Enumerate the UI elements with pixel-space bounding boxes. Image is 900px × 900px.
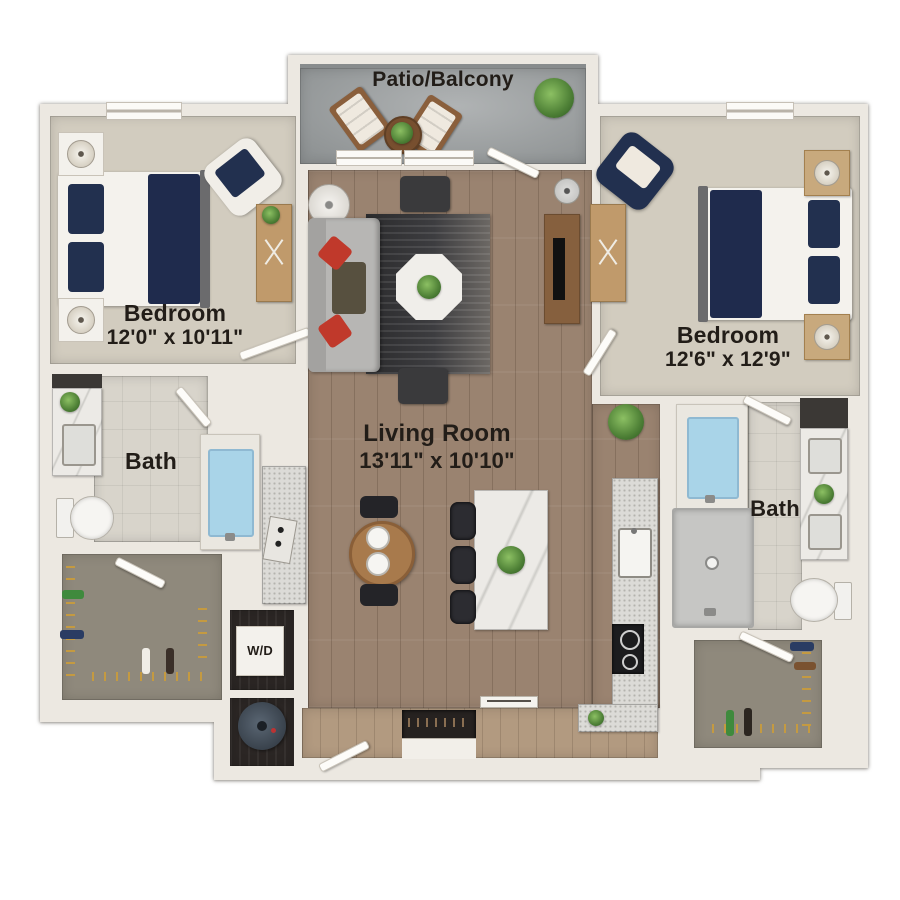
bathtub-surround [200,434,260,550]
floor-plan: W/D Patio/Balcony Bedroom 12'0" x 10'11" [0,0,900,900]
bar-stool [450,590,476,624]
living-room-label: Living Room 13'11" x 10'10" [322,420,552,473]
bed-left [58,172,208,306]
patio-table-plant [391,122,413,144]
bathtub-surround [676,404,748,510]
pillow-navy [68,184,104,234]
toilet-bowl [790,578,838,622]
table-lamp [814,160,840,186]
bathroom-sink [808,438,842,474]
dining-chair [360,584,398,606]
bedroom-left-label: Bedroom 12'0" x 10'11" [70,300,280,351]
bed-right [700,188,852,320]
small-appliance [262,516,297,564]
vanity-plant [60,392,80,412]
bath-right-label: Bath [742,496,808,521]
faucet [631,528,637,534]
blanket-navy [148,174,200,304]
bathtub [208,449,254,537]
shower [672,508,754,628]
hanging-garment [60,630,84,639]
desk-plant [262,206,280,224]
floor-lamp [554,178,580,204]
room-name: Bedroom [70,300,280,326]
bathroom-sink [62,424,96,466]
room-dimensions: 13'11" x 10'10" [322,448,552,473]
pillow-navy [68,242,104,292]
island-plant [497,546,525,574]
burner [622,654,638,670]
tv [553,238,565,300]
bathroom-sink [808,514,842,550]
place-setting [366,526,390,550]
sofa-backrest [308,218,326,372]
table-lamp [67,140,95,168]
bar-stool [450,502,476,540]
corridor-plant [608,404,644,440]
bath-left-label: Bath [94,448,208,474]
desk-right-bedroom [590,204,626,302]
bed-footboard [698,186,708,322]
appliance-knob [277,527,284,534]
window [726,102,794,120]
counter-plant [588,710,604,726]
coat-closet [402,710,476,758]
sofa [308,218,380,372]
closet-bifold-door [402,738,476,759]
patio-window [404,150,474,166]
room-dimensions: 12'6" x 12'9" [618,348,838,372]
patio-label: Patio/Balcony [300,68,586,92]
kitchen-counter-left [262,466,306,604]
armchair-cushion [214,147,266,198]
pillow-navy [808,200,840,248]
room-name: Bedroom [618,322,838,348]
kitchen-sink [618,528,652,578]
toilet-bowl [70,496,114,540]
accent-chair [400,176,450,212]
hanging-garment [142,648,150,674]
entry-shelf [480,696,538,708]
coat-hangers [408,718,470,727]
window [106,102,182,120]
burner [620,630,640,650]
blanket-navy [710,190,762,318]
cooktop [612,624,644,674]
closet-rod-ticks [66,566,75,684]
bar-stool [450,546,476,584]
armchair-pillow [614,144,661,189]
valve [271,728,276,733]
tub-faucet [705,495,715,503]
dining-chair [360,496,398,518]
washer-dryer-unit: W/D [236,626,284,676]
vanity-shelf [52,374,102,388]
patio-window [336,150,402,166]
vanity-plant [814,484,834,504]
accent-chair [398,368,448,404]
bathtub [687,417,739,499]
pillow-navy [808,256,840,304]
water-heater-cap [257,721,267,731]
hanging-garment [62,590,84,599]
shower-fixture [704,608,716,616]
coffee-table-plant [417,275,441,299]
shower-drain [705,556,719,570]
hanging-garment [744,708,752,736]
closet-rod-ticks [198,608,207,666]
vanity-shelf [800,398,848,428]
hanging-garment [790,642,814,651]
room-name: Living Room [322,420,552,448]
room-dimensions: 12'0" x 10'11" [70,326,280,350]
hanging-garment [166,648,174,674]
water-heater [238,702,286,750]
tub-faucet [225,533,235,541]
closet-rod-ticks [92,672,212,681]
hanging-garment [726,710,734,736]
bedroom-right-label: Bedroom 12'6" x 12'9" [618,322,838,373]
washer-dryer-label: W/D [247,644,273,659]
appliance-knob [275,540,282,547]
hanging-garment [794,662,816,670]
place-setting [366,552,390,576]
bed-footboard [200,170,210,308]
shelf-edge [487,700,531,702]
